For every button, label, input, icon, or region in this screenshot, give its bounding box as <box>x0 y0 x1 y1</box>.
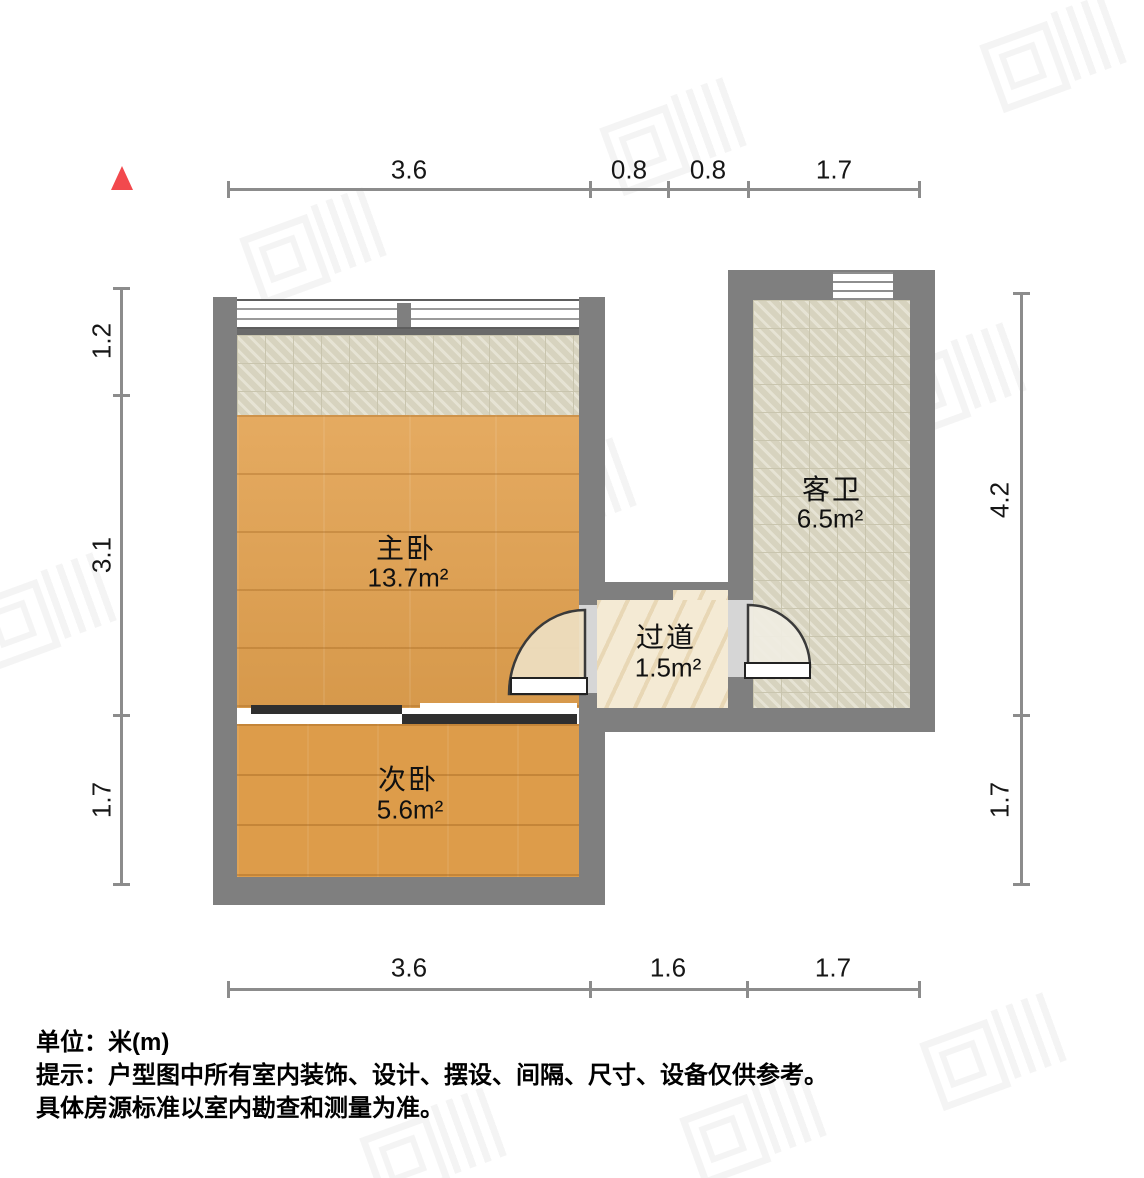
unit-note: 单位：米(m) <box>36 1026 828 1059</box>
tip-note-line2: 具体房源标准以室内勘查和测量为准。 <box>36 1092 828 1125</box>
room-area-hallway: 1.5m² <box>635 653 701 684</box>
room-area-second: 5.6m² <box>377 795 443 826</box>
floor-plan-canvas: 3.6 0.8 0.8 1.7 3.6 1.6 1.7 1.2 3.1 1.7 … <box>0 0 1144 1178</box>
tip-note-line1: 提示：户型图中所有室内装饰、设计、摆设、间隔、尺寸、设备仅供参考。 <box>36 1059 828 1092</box>
room-area-master: 13.7m² <box>368 563 449 594</box>
room-name-master: 主卧 <box>376 527 436 567</box>
footer-notes: 单位：米(m) 提示：户型图中所有室内装饰、设计、摆设、间隔、尺寸、设备仅供参考… <box>36 1026 828 1125</box>
room-name-hallway: 过道 <box>636 616 696 656</box>
room-name-second: 次卧 <box>378 758 438 798</box>
door-swing-layer <box>0 0 1144 1178</box>
room-area-bath: 6.5m² <box>797 504 863 535</box>
room-name-bath: 客卫 <box>802 468 862 508</box>
door-swing-bath <box>748 605 810 667</box>
door-leaf-bath <box>745 663 810 678</box>
door-leaf-master <box>511 678 587 694</box>
